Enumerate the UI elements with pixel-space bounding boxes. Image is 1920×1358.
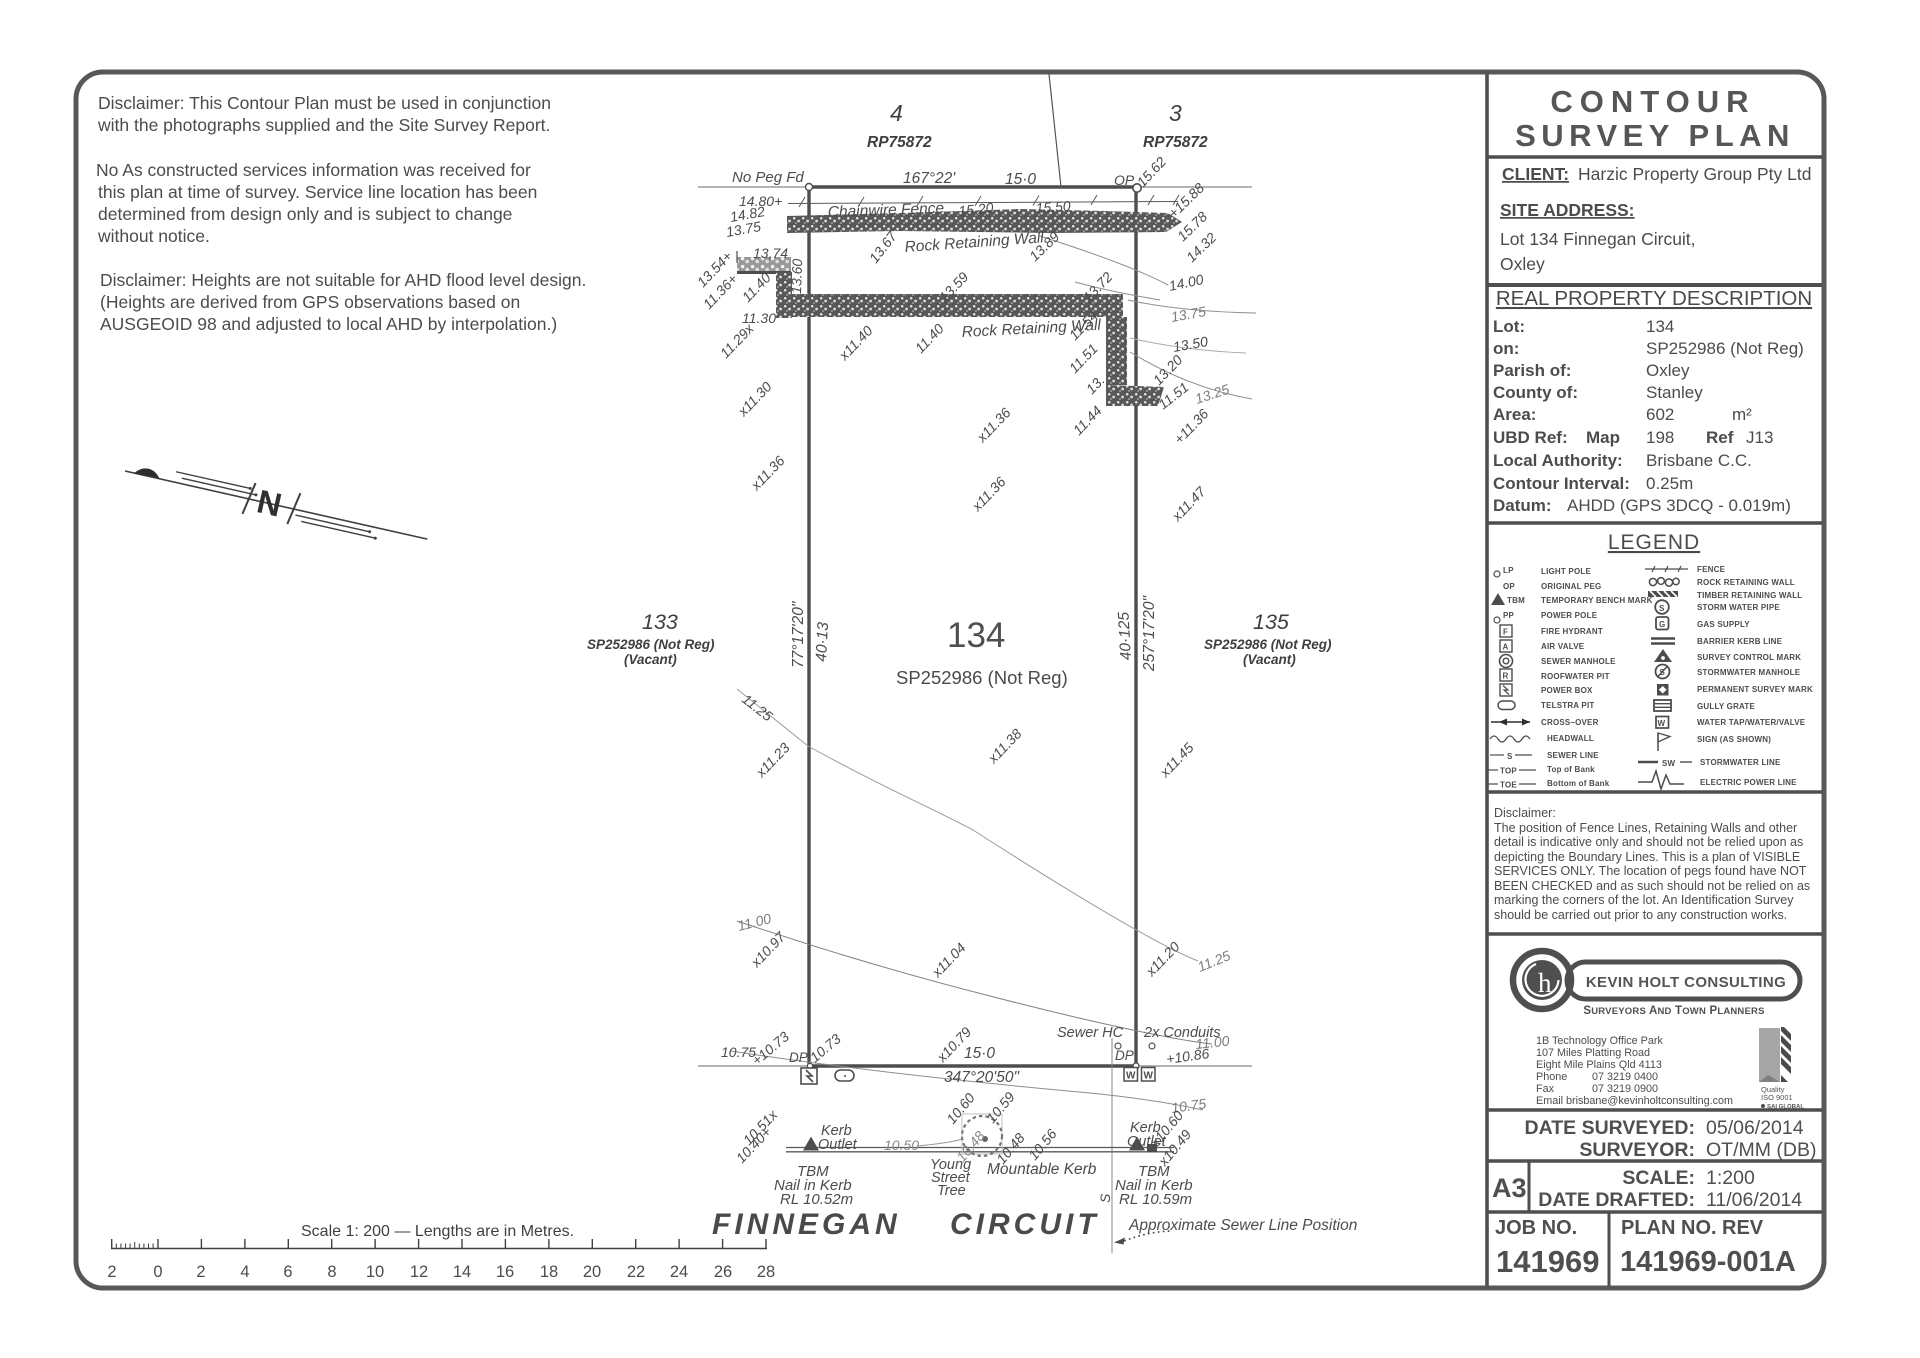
svg-text:SW: SW <box>1662 759 1676 768</box>
svg-text:167°22': 167°22' <box>903 170 956 187</box>
svg-text:141969: 141969 <box>1496 1244 1599 1279</box>
svg-text:ROOFWATER PIT: ROOFWATER PIT <box>1541 672 1610 681</box>
svg-text:Tree: Tree <box>937 1183 966 1199</box>
svg-text:SURVEY CONTROL MARK: SURVEY CONTROL MARK <box>1697 653 1801 662</box>
svg-text:SIGN (AS SHOWN): SIGN (AS SHOWN) <box>1697 735 1771 744</box>
svg-text:OP: OP <box>1503 582 1515 591</box>
svg-text:Disclaimer: Heights are not su: Disclaimer: Heights are not suitable for… <box>100 270 586 290</box>
svg-text:LEGEND: LEGEND <box>1608 531 1700 554</box>
svg-text:with the photographs supplied: with the photographs supplied and the Si… <box>97 115 550 135</box>
svg-text:10.50: 10.50 <box>884 1137 919 1153</box>
svg-text:24: 24 <box>670 1263 688 1281</box>
svg-text:No As constructed services inf: No As constructed services information w… <box>96 160 531 180</box>
svg-text:x11.38: x11.38 <box>984 725 1025 766</box>
svg-text:POWER BOX: POWER BOX <box>1541 686 1593 695</box>
svg-text:STORMWATER MANHOLE: STORMWATER MANHOLE <box>1697 668 1801 677</box>
svg-text:SURVEYORS AND TOWN PLANNERS: SURVEYORS AND TOWN PLANNERS <box>1583 1005 1764 1017</box>
svg-text:depicting the Boundary Lines.: depicting the Boundary Lines. This is a … <box>1494 850 1800 864</box>
svg-text:Outlet: Outlet <box>818 1137 858 1153</box>
svg-text:Rock Retaining Wall: Rock Retaining Wall <box>904 229 1045 256</box>
svg-text:The position of Fence Lines, R: The position of Fence Lines, Retaining W… <box>1494 821 1797 835</box>
svg-text:GULLY GRATE: GULLY GRATE <box>1697 702 1756 711</box>
svg-text:Approximate Sewer Line Positio: Approximate Sewer Line Position <box>1128 1217 1357 1234</box>
svg-text:TEMPORARY BENCH MARK: TEMPORARY BENCH MARK <box>1541 596 1653 605</box>
svg-text:40·13: 40·13 <box>813 621 832 662</box>
svg-text:26: 26 <box>714 1263 732 1281</box>
svg-text:x11.40: x11.40 <box>835 322 876 363</box>
svg-text:Contour Interval:: Contour Interval: <box>1493 474 1630 493</box>
svg-text:Map: Map <box>1586 428 1620 447</box>
svg-text:DATE DRAFTED:: DATE DRAFTED: <box>1538 1189 1695 1211</box>
svg-text:DP: DP <box>1115 1048 1134 1063</box>
svg-text:A: A <box>1503 643 1509 652</box>
svg-text:OP: OP <box>1114 172 1135 188</box>
svg-text:11.25: 11.25 <box>1195 947 1233 975</box>
svg-text:TOP: TOP <box>1500 767 1517 776</box>
svg-text:4: 4 <box>890 100 903 126</box>
svg-text:STORM WATER PIPE: STORM WATER PIPE <box>1697 603 1780 612</box>
svg-text:Oxley: Oxley <box>1500 254 1545 274</box>
svg-text:GAS SUPPLY: GAS SUPPLY <box>1697 620 1750 629</box>
svg-text:CIRCUIT: CIRCUIT <box>950 1208 1100 1241</box>
svg-text:14.00: 14.00 <box>1167 271 1205 294</box>
svg-text:11.44: 11.44 <box>1070 402 1105 438</box>
svg-text:S: S <box>1097 1193 1113 1203</box>
svg-text:11.40: 11.40 <box>912 320 947 356</box>
svg-text:TIMBER RETAINING WALL: TIMBER RETAINING WALL <box>1697 591 1802 600</box>
svg-text:ROCK RETAINING WALL: ROCK RETAINING WALL <box>1697 578 1795 587</box>
svg-text:2x Conduits: 2x Conduits <box>1143 1025 1221 1041</box>
svg-text:RL 10.52m: RL 10.52m <box>780 1191 853 1208</box>
svg-text:Datum:: Datum: <box>1493 496 1552 515</box>
svg-text:07 3219 0900: 07 3219 0900 <box>1592 1083 1658 1095</box>
svg-text:UBD Ref:: UBD Ref: <box>1493 428 1568 447</box>
svg-text:SEWER LINE: SEWER LINE <box>1547 751 1599 760</box>
svg-text:14: 14 <box>453 1263 471 1281</box>
svg-text:Parish of:: Parish of: <box>1493 361 1571 380</box>
svg-text:1:200: 1:200 <box>1706 1167 1755 1189</box>
svg-text:LP: LP <box>1503 566 1514 575</box>
svg-text:OT/MM (DB): OT/MM (DB) <box>1706 1139 1816 1161</box>
svg-text:8: 8 <box>327 1263 336 1281</box>
svg-text:10.60: 10.60 <box>943 1090 978 1127</box>
svg-text:S: S <box>1659 604 1665 613</box>
svg-text:2: 2 <box>196 1263 205 1281</box>
svg-text:SERVICES ONLY. The location of: SERVICES ONLY. The location of pegs foun… <box>1494 864 1807 878</box>
svg-text:Area:: Area: <box>1493 405 1536 424</box>
svg-text:x11.36: x11.36 <box>968 473 1009 514</box>
svg-text:W: W <box>1144 1071 1154 1082</box>
svg-text:detail is indicative only and: detail is indicative only and should not… <box>1494 835 1803 849</box>
svg-text:No Peg Fd: No Peg Fd <box>732 169 804 186</box>
svg-text:347°20'50": 347°20'50" <box>944 1069 1021 1086</box>
svg-text:DATE SURVEYED:: DATE SURVEYED: <box>1525 1117 1695 1139</box>
svg-text:on:: on: <box>1493 339 1519 358</box>
svg-text:S: S <box>1507 752 1513 761</box>
svg-text:FINNEGAN: FINNEGAN <box>712 1208 901 1241</box>
svg-text:HEADWALL: HEADWALL <box>1547 734 1594 743</box>
svg-text:ELECTRIC POWER LINE: ELECTRIC POWER LINE <box>1700 778 1797 787</box>
svg-text:J13: J13 <box>1746 428 1773 447</box>
svg-text:107 Miles Platting Road: 107 Miles Platting Road <box>1536 1047 1650 1059</box>
svg-text:13.75: 13.75 <box>1170 303 1207 325</box>
svg-text:should be carried out prior to: should be carried out prior to any const… <box>1494 908 1787 922</box>
svg-text:Stanley: Stanley <box>1646 383 1703 402</box>
svg-text:15·0: 15·0 <box>964 1045 995 1062</box>
svg-text:marking the corners of the lot: marking the corners of the lot. An Ident… <box>1494 893 1794 907</box>
svg-text:Scale 1: 200 — Lengths are i: Scale 1: 200 — Lengths are in Metres. <box>301 1223 574 1240</box>
svg-text:18: 18 <box>540 1263 558 1281</box>
svg-text:12: 12 <box>410 1263 428 1281</box>
svg-text:Top of Bank: Top of Bank <box>1547 765 1595 774</box>
svg-text:DP: DP <box>789 1050 808 1065</box>
svg-text:Email brisbane@kevinholtconsul: Email brisbane@kevinholtconsulting.com <box>1536 1095 1733 1107</box>
svg-text:CROSS–OVER: CROSS–OVER <box>1541 718 1599 727</box>
svg-text:PLAN NO.: PLAN NO. <box>1621 1217 1717 1239</box>
svg-text:10.56: 10.56 <box>1025 1126 1060 1163</box>
svg-text:Phone: Phone <box>1536 1071 1567 1083</box>
svg-text:15.50: 15.50 <box>1035 198 1071 216</box>
svg-text:REV: REV <box>1722 1217 1764 1239</box>
svg-text:N: N <box>254 482 285 523</box>
svg-text:15.62: 15.62 <box>1133 153 1169 190</box>
svg-text:198: 198 <box>1646 428 1674 447</box>
svg-text:SP252986 (Not Reg): SP252986 (Not Reg) <box>587 637 715 652</box>
svg-text:135: 135 <box>1253 610 1290 634</box>
svg-text:x11.36: x11.36 <box>747 452 788 493</box>
svg-text:this plan at time of survey. S: this plan at time of survey. Service lin… <box>98 182 537 202</box>
svg-text:4: 4 <box>240 1263 249 1281</box>
svg-text:257°17'20": 257°17'20" <box>1141 594 1158 672</box>
svg-text:CLIENT:: CLIENT: <box>1502 164 1569 184</box>
svg-text:(Heights are derived from GPS: (Heights are derived from GPS observatio… <box>100 292 520 312</box>
svg-text:TBM: TBM <box>1507 596 1525 605</box>
svg-text:RP75872: RP75872 <box>867 134 932 151</box>
svg-text:133: 133 <box>642 610 678 634</box>
svg-text:without notice.: without notice. <box>97 226 210 246</box>
svg-text:1B Technology Office Park: 1B Technology Office Park <box>1536 1035 1663 1047</box>
svg-text:40·125: 40·125 <box>1115 611 1135 660</box>
svg-text:Disclaimer: This Contour Plan: Disclaimer: This Contour Plan must be us… <box>98 93 551 113</box>
svg-text:(Vacant): (Vacant) <box>624 652 677 667</box>
svg-text:AHDD (GPS 3DCQ - 0.019m): AHDD (GPS 3DCQ - 0.019m) <box>1567 496 1791 515</box>
svg-text:SURVEY PLAN: SURVEY PLAN <box>1515 118 1795 153</box>
svg-text:JOB NO.: JOB NO. <box>1495 1217 1577 1239</box>
svg-text:ORIGINAL PEG: ORIGINAL PEG <box>1541 582 1601 591</box>
svg-text:11.00: 11.00 <box>736 910 773 934</box>
svg-text:FENCE: FENCE <box>1697 565 1726 574</box>
svg-text:Lot:: Lot: <box>1493 317 1525 336</box>
svg-text:SCALE:: SCALE: <box>1622 1167 1695 1189</box>
svg-text:141969-001A: 141969-001A <box>1620 1246 1796 1278</box>
svg-text:BEEN CHECKED and as such shoul: BEEN CHECKED and as such should not be r… <box>1494 879 1810 893</box>
svg-text:ISO 9001: ISO 9001 <box>1761 1093 1793 1102</box>
svg-text:Mountable Kerb: Mountable Kerb <box>987 1161 1097 1178</box>
svg-text:x11.23: x11.23 <box>752 739 793 780</box>
svg-text:3: 3 <box>1169 100 1182 126</box>
svg-text:County of:: County of: <box>1493 383 1578 402</box>
svg-text:SAI GLOBAL: SAI GLOBAL <box>1767 1105 1804 1111</box>
svg-text:SURVEYOR:: SURVEYOR: <box>1579 1139 1695 1161</box>
svg-text:R: R <box>1503 672 1509 681</box>
svg-text:10.73: 10.73 <box>807 1030 844 1065</box>
svg-text:x11.36: x11.36 <box>973 404 1014 445</box>
svg-text:07 3219 0400: 07 3219 0400 <box>1592 1071 1658 1083</box>
svg-text:KEVIN HOLT CONSULTING: KEVIN HOLT CONSULTING <box>1586 974 1786 991</box>
svg-text:RP75872: RP75872 <box>1143 134 1208 151</box>
svg-text:134: 134 <box>1646 317 1674 336</box>
svg-text:TELSTRA PIT: TELSTRA PIT <box>1541 701 1594 710</box>
svg-text:LIGHT POLE: LIGHT POLE <box>1541 567 1591 576</box>
svg-text:13.: 13. <box>1083 372 1108 397</box>
svg-text:REAL PROPERTY DESCRIPTION: REAL PROPERTY DESCRIPTION <box>1496 287 1812 310</box>
svg-text:Bottom of Bank: Bottom of Bank <box>1547 779 1610 788</box>
svg-text:Ref: Ref <box>1706 428 1734 447</box>
svg-text:(Vacant): (Vacant) <box>1243 652 1296 667</box>
svg-text:WATER TAP/WATER/VALVE: WATER TAP/WATER/VALVE <box>1697 718 1806 727</box>
svg-text:CONTOUR: CONTOUR <box>1550 84 1755 119</box>
svg-text:15·0: 15·0 <box>1005 171 1036 188</box>
svg-text:6: 6 <box>283 1263 292 1281</box>
svg-text:S: S <box>1660 668 1666 677</box>
svg-text:Harzic Property Group Pty Ltd: Harzic Property Group Pty Ltd <box>1578 164 1811 184</box>
svg-text:11.25: 11.25 <box>739 691 776 725</box>
svg-text:STORMWATER LINE: STORMWATER LINE <box>1700 758 1781 767</box>
svg-text:Fax: Fax <box>1536 1083 1555 1095</box>
svg-text:POWER POLE: POWER POLE <box>1541 611 1598 620</box>
svg-text:PP: PP <box>1503 611 1515 620</box>
svg-text:134: 134 <box>947 616 1005 655</box>
svg-text:13.50: 13.50 <box>1172 333 1209 355</box>
svg-text:11.40: 11.40 <box>739 269 774 305</box>
svg-text:A3: A3 <box>1492 1173 1527 1203</box>
svg-text:16: 16 <box>496 1263 514 1281</box>
svg-text:x11.45: x11.45 <box>1156 739 1197 780</box>
svg-text:Brisbane C.C.: Brisbane C.C. <box>1646 451 1752 470</box>
svg-text:TOE: TOE <box>1500 781 1517 790</box>
svg-text:AIR VALVE: AIR VALVE <box>1541 642 1585 651</box>
svg-text:PERMANENT SURVEY MARK: PERMANENT SURVEY MARK <box>1697 685 1813 694</box>
svg-text:Sewer HC: Sewer HC <box>1057 1025 1124 1041</box>
svg-text:+11.36: +11.36 <box>1171 405 1212 447</box>
svg-text:x11.30: x11.30 <box>734 378 775 419</box>
svg-text:Eight Mile Plains Qld 4113: Eight Mile Plains Qld 4113 <box>1536 1059 1662 1071</box>
svg-text:G: G <box>1659 620 1665 629</box>
svg-text:x11.47: x11.47 <box>1168 483 1210 525</box>
svg-text:602: 602 <box>1646 405 1674 424</box>
svg-text:SP252986 (Not Reg): SP252986 (Not Reg) <box>1204 637 1332 652</box>
svg-text:13.60: 13.60 <box>788 258 805 294</box>
svg-text:Oxley: Oxley <box>1646 361 1690 380</box>
svg-text:x11.04: x11.04 <box>928 939 969 980</box>
svg-text:Local Authority:: Local Authority: <box>1493 451 1623 470</box>
svg-text:SEWER MANHOLE: SEWER MANHOLE <box>1541 657 1616 666</box>
svg-text:determined from design only an: determined from design only and is subje… <box>98 204 512 224</box>
svg-text:28: 28 <box>757 1263 775 1281</box>
svg-text:Lot 134 Finnegan Circuit,: Lot 134 Finnegan Circuit, <box>1500 229 1696 249</box>
svg-text:BARRIER KERB LINE: BARRIER KERB LINE <box>1697 637 1783 646</box>
svg-text:FIRE HYDRANT: FIRE HYDRANT <box>1541 627 1603 636</box>
svg-text:h: h <box>1538 968 1552 998</box>
svg-text:AUSGEOID 98 and adjusted to lo: AUSGEOID 98 and adjusted to local AHD by… <box>100 314 557 334</box>
svg-text:77°17'20": 77°17'20" <box>790 600 807 668</box>
svg-text:RL 10.59m: RL 10.59m <box>1119 1191 1192 1208</box>
svg-text:13.67: 13.67 <box>866 227 901 265</box>
svg-text:11.51: 11.51 <box>1066 341 1101 377</box>
svg-text:SP252986 (Not Reg): SP252986 (Not Reg) <box>1646 339 1804 358</box>
svg-text:W: W <box>1126 1071 1136 1082</box>
svg-text:SP252986 (Not Reg): SP252986 (Not Reg) <box>896 667 1068 688</box>
svg-text:10: 10 <box>366 1263 384 1281</box>
svg-text:22: 22 <box>627 1263 645 1281</box>
svg-text:0: 0 <box>153 1263 162 1281</box>
svg-text:20: 20 <box>583 1263 601 1281</box>
svg-text:SITE ADDRESS:: SITE ADDRESS: <box>1500 200 1635 220</box>
svg-text:2: 2 <box>107 1263 116 1281</box>
svg-text:Disclaimer:: Disclaimer: <box>1494 806 1556 820</box>
svg-text:W: W <box>1658 719 1666 728</box>
svg-text:05/06/2014: 05/06/2014 <box>1706 1117 1804 1139</box>
svg-text:m²: m² <box>1732 405 1752 424</box>
svg-text:13,74: 13,74 <box>753 245 788 261</box>
svg-text:+10.86: +10.86 <box>1165 1045 1210 1067</box>
svg-text:11/06/2014: 11/06/2014 <box>1706 1189 1802 1211</box>
svg-text:10.59: 10.59 <box>983 1089 1018 1126</box>
svg-text:0.25m: 0.25m <box>1646 474 1693 493</box>
svg-text:F: F <box>1503 628 1508 637</box>
svg-text:x10.97: x10.97 <box>747 928 789 971</box>
